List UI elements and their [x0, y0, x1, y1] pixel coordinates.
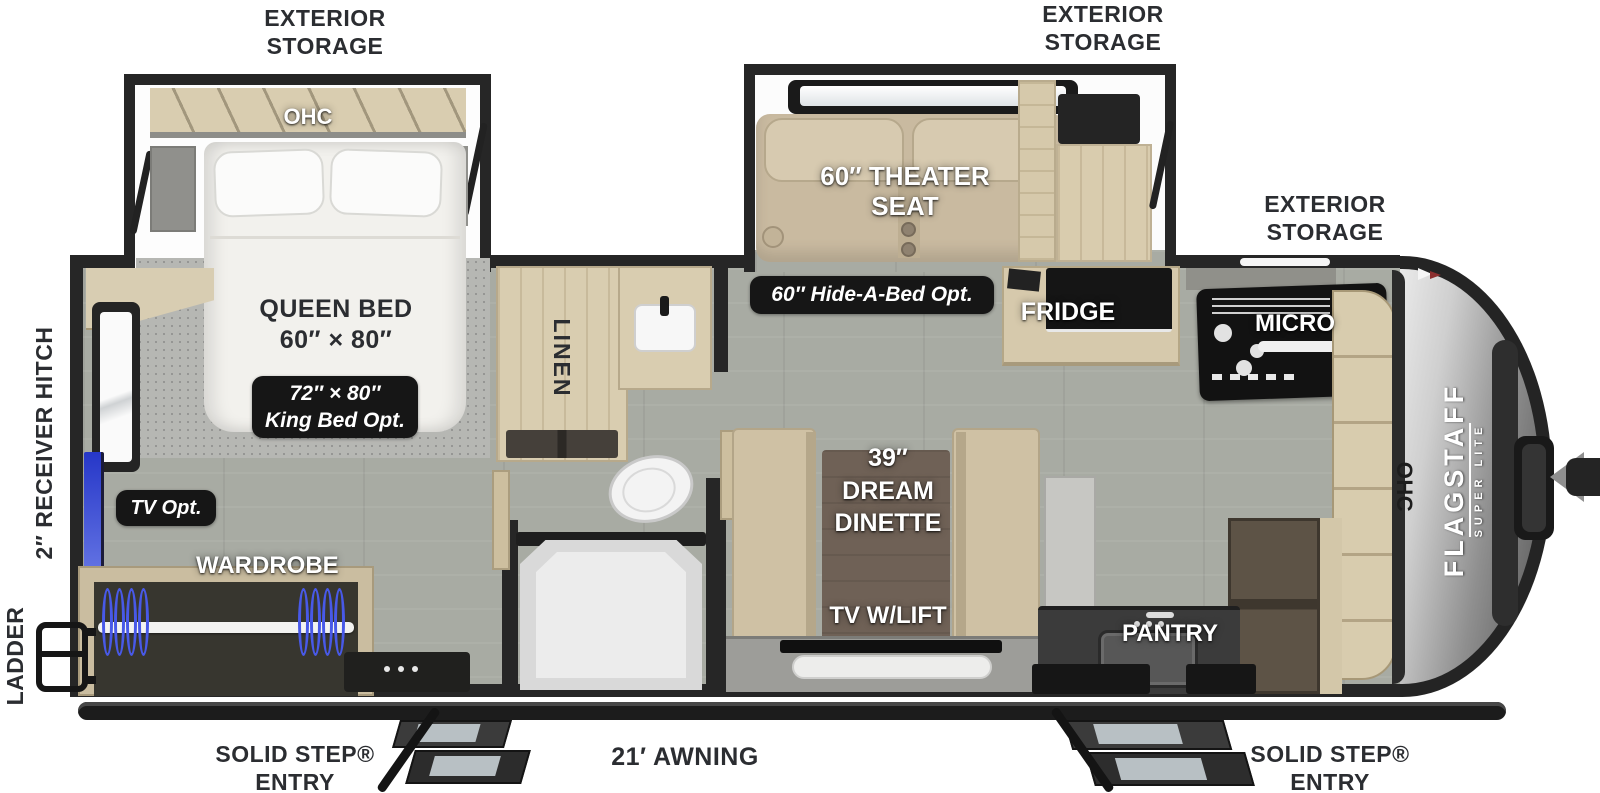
- label-tv-lift: TV W/LIFT: [818, 602, 958, 630]
- entry-mat-rear: [344, 652, 470, 692]
- ladder-rung: [42, 651, 82, 657]
- hanger-icon: [138, 588, 149, 656]
- badge-king-bed-option: 72″ × 80″ King Bed Opt.: [252, 376, 418, 438]
- mat-dot: [412, 666, 418, 672]
- label-linen: LINEN: [548, 298, 576, 418]
- lift-tv: [780, 640, 1002, 653]
- pantry-side-panel: [1320, 518, 1342, 694]
- hanger-icon: [114, 588, 125, 656]
- rear-window-glass: [100, 312, 132, 462]
- theater-cupholder-2: [901, 242, 916, 257]
- hanger-icon: [334, 588, 345, 656]
- entry-steps-front-tread-2: [1115, 758, 1207, 780]
- label-exterior-storage-front: EXTERIOR STORAGE: [1240, 190, 1410, 246]
- entry-mat-front-1: [1032, 664, 1150, 694]
- label-wardrobe: WARDROBE: [196, 552, 336, 580]
- label-receiver-hitch: 2″ RECEIVER HITCH: [30, 308, 60, 578]
- label-fridge: FRIDGE: [1008, 298, 1128, 327]
- hanger-icon: [322, 588, 333, 656]
- badge-tv-option: TV Opt.: [116, 490, 216, 526]
- badge-hide-a-bed-option: 60″ Hide-A-Bed Opt.: [750, 276, 994, 314]
- ladder-mount: [84, 628, 96, 636]
- ladder-mount: [84, 676, 96, 684]
- bath-wall-right-upper: [714, 268, 728, 372]
- label-bedroom-ohc: OHC: [248, 104, 368, 129]
- slideout-end-window: [1058, 94, 1140, 144]
- kitchen-wall-window-icon: [1240, 258, 1330, 266]
- label-pantry: PANTRY: [1112, 620, 1228, 648]
- bath-faucet-icon: [660, 296, 669, 316]
- nightstand-left: [150, 146, 196, 232]
- label-queen-bed: QUEEN BED 60″ × 80″: [226, 294, 446, 355]
- label-theater-seat: 60″ THEATER SEAT: [795, 162, 1015, 222]
- mat-dot: [398, 666, 404, 672]
- end-table: [1056, 144, 1152, 262]
- hanger-icon: [298, 588, 309, 656]
- bed-fold-line: [210, 236, 460, 239]
- fridge-vent: [1007, 268, 1041, 291]
- pillow-left: [213, 148, 325, 218]
- tv-lift-door: [792, 655, 992, 679]
- theater-armrest-left: [762, 226, 784, 248]
- rear-ladder: [36, 622, 88, 692]
- hanger-icon: [102, 588, 113, 656]
- awning-roller: [78, 702, 1506, 720]
- label-exterior-storage-mid: EXTERIOR STORAGE: [1018, 0, 1188, 56]
- kitchen-faucet-icon: [1146, 612, 1174, 618]
- label-dinette: 39″ DREAM DINETTE: [828, 442, 948, 540]
- burner-icon: [1214, 324, 1232, 342]
- entry-mat-front-2: [1186, 664, 1256, 694]
- shower-pan-inner: [536, 552, 686, 678]
- hitch-coupler: [1566, 458, 1600, 496]
- brand-logo: FLAGSTAFF SUPER LITE: [1440, 360, 1496, 600]
- brand-name: FLAGSTAFF: [1440, 360, 1468, 600]
- entry-steps-front-tread: [1093, 724, 1183, 744]
- mat-dot: [384, 666, 390, 672]
- entry-steps-rear-tread-2: [429, 756, 501, 776]
- theater-cupholder-1: [901, 222, 916, 237]
- floorplan-canvas: OHC FLAGSTAFF SUPER LITE OHC QUEEN BED 6…: [0, 0, 1600, 793]
- hitch-jack-inner: [1522, 444, 1546, 532]
- range-buttons: [1212, 374, 1296, 380]
- label-entry-rear: SOLID STEP® ENTRY: [200, 740, 390, 793]
- label-awning: 21′ AWNING: [600, 742, 770, 773]
- label-ladder: LADDER: [1, 596, 27, 716]
- hanger-icon: [310, 588, 321, 656]
- pillow-right: [329, 148, 443, 218]
- brand-model: SUPER LITE: [1469, 423, 1485, 538]
- label-exterior-storage-rear: EXTERIOR STORAGE: [240, 4, 410, 60]
- label-entry-front: SOLID STEP® ENTRY: [1240, 740, 1420, 793]
- label-ohc-front: OHC: [1393, 452, 1417, 522]
- theater-side-divider: [1018, 80, 1056, 262]
- bath-door-post-left: [492, 470, 510, 570]
- linen-drawers: [506, 430, 618, 458]
- hanger-icon: [126, 588, 137, 656]
- label-micro: MICRO: [1240, 310, 1350, 338]
